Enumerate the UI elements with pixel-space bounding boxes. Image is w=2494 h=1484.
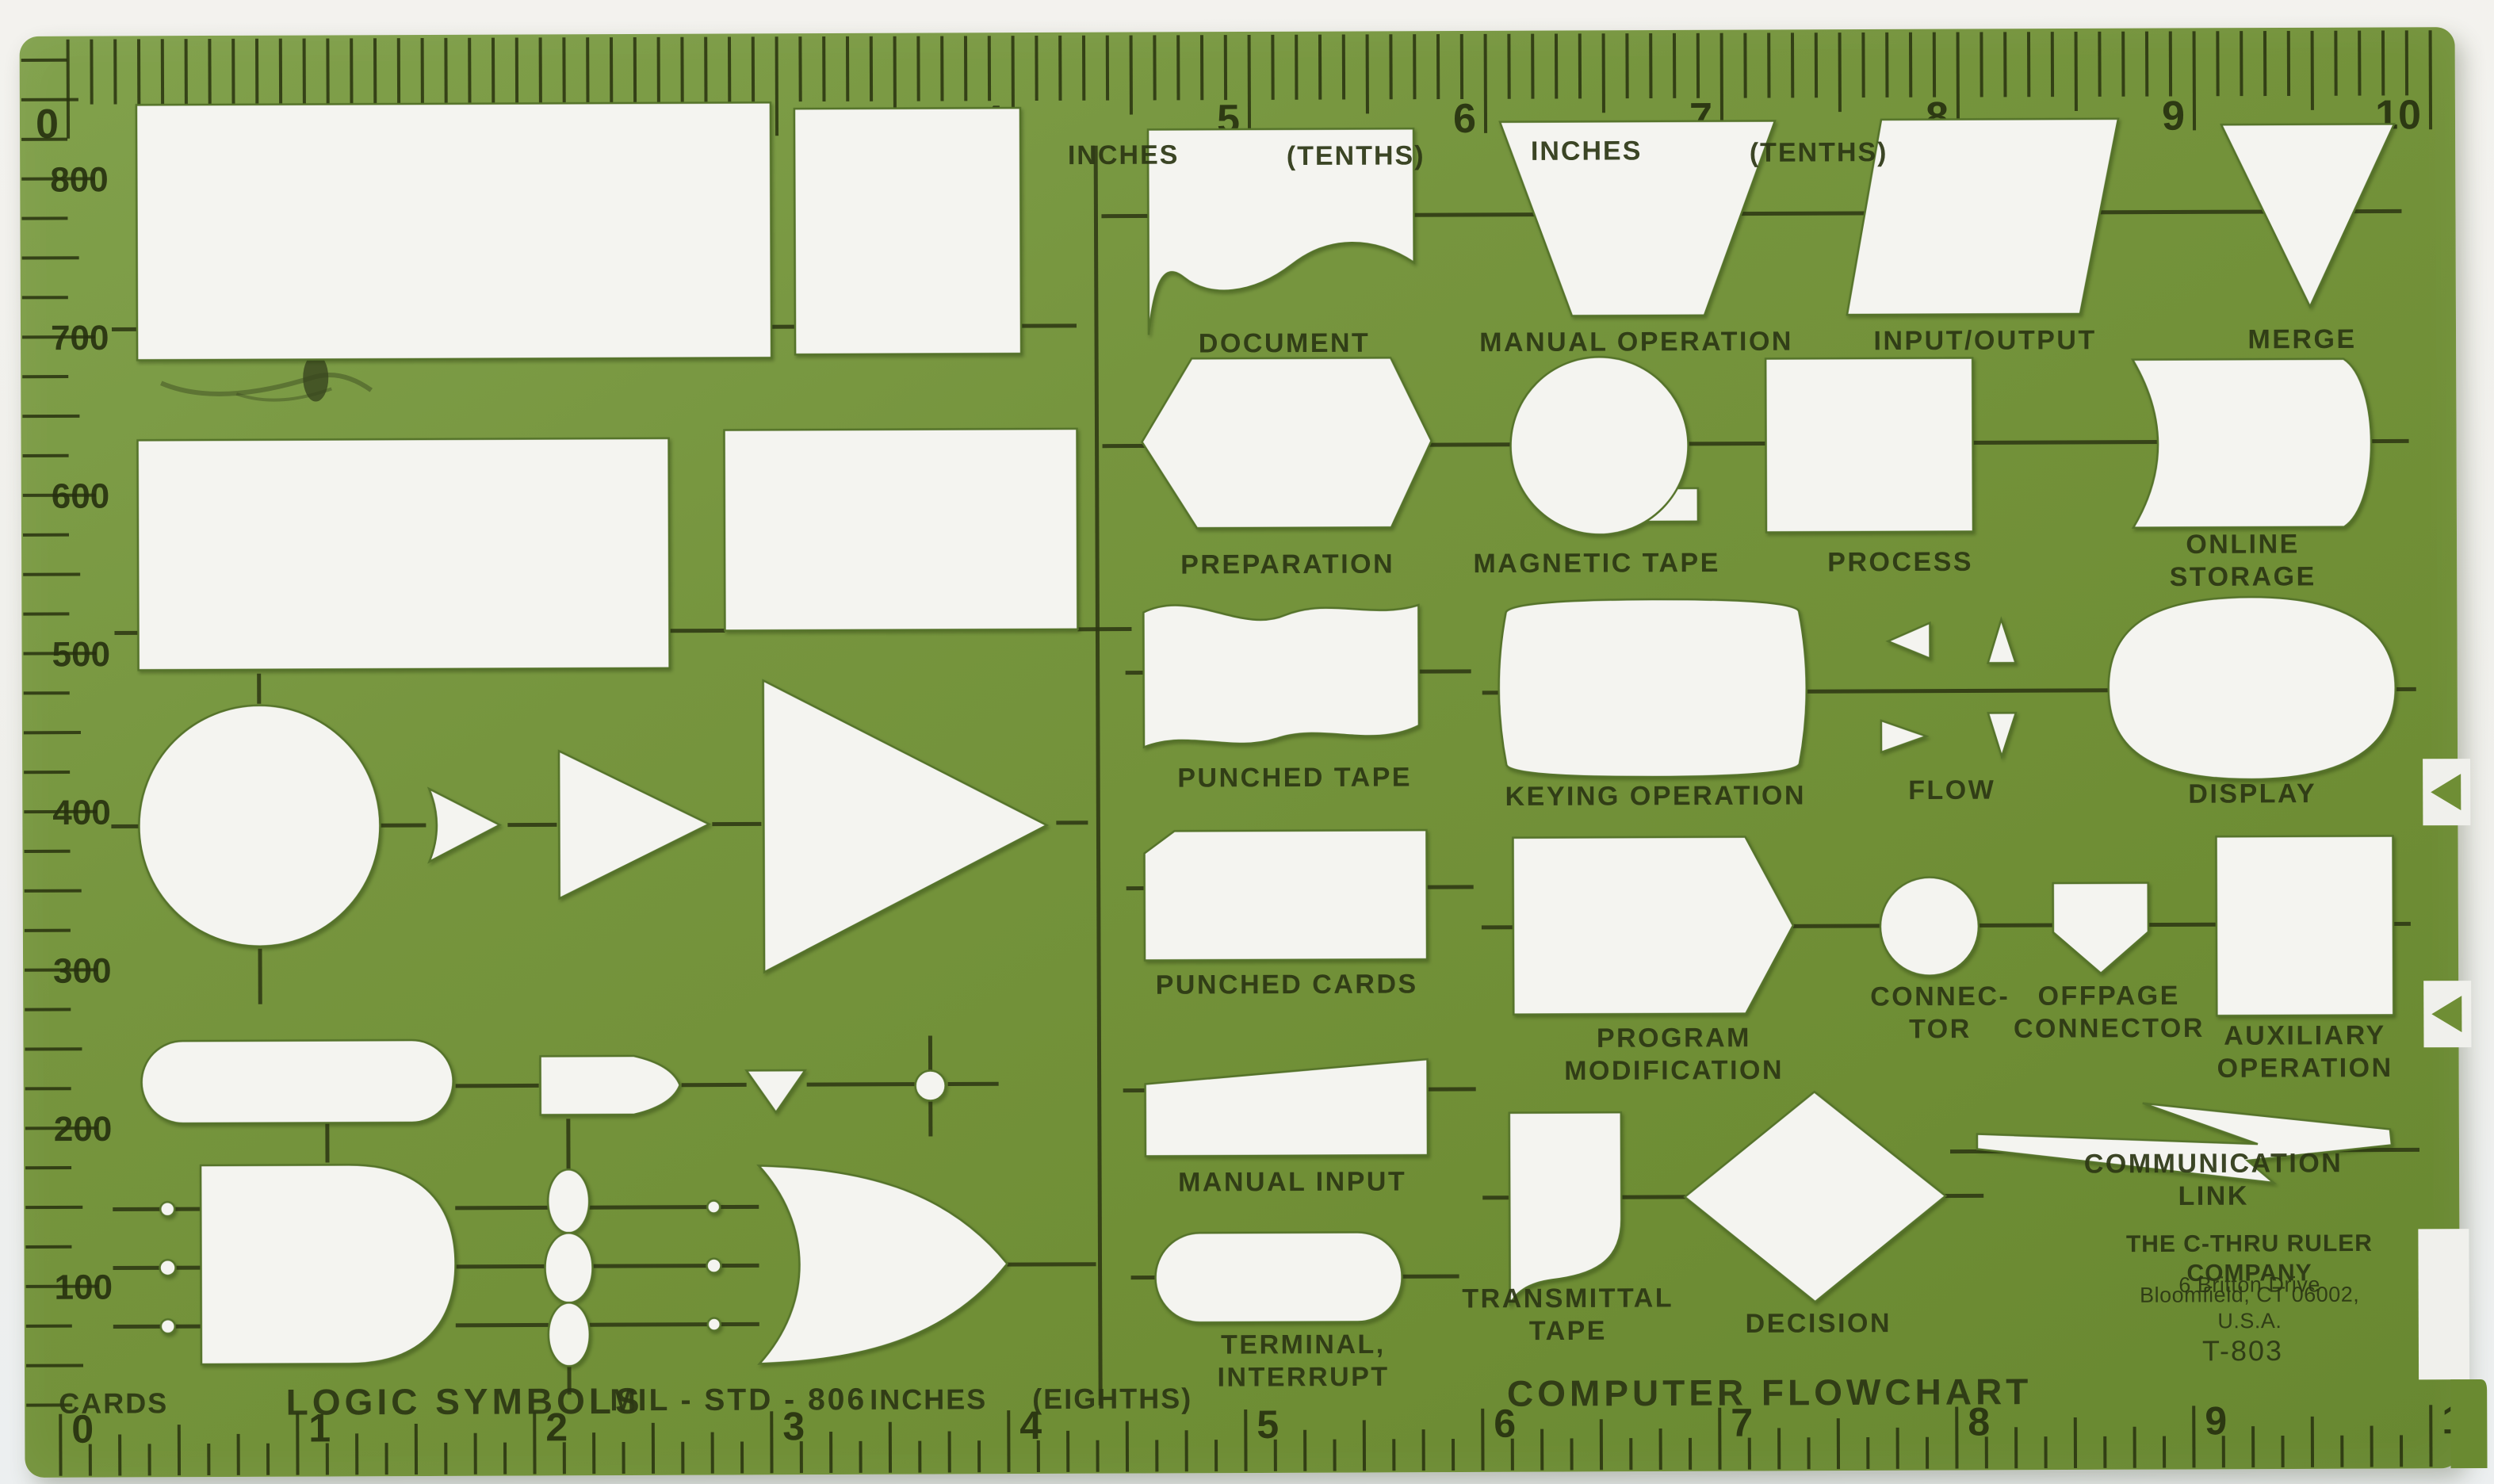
process-cutout <box>1765 358 1973 532</box>
triangle-large-cutout <box>763 679 1047 972</box>
caption-eighths-bottom: (EIGHTHS) <box>1032 1381 1192 1417</box>
label-input-output: INPUT/OUTPUT <box>1873 324 2096 358</box>
caption-logic-symbols: LOGIC SYMBOLS <box>286 1379 644 1425</box>
top-ruler-unit-inches-1: INCHES <box>1068 140 1180 173</box>
label-connector: CONNEC- TOR <box>1870 981 2010 1047</box>
flow-arrow-left-cutout <box>1888 623 1930 659</box>
left-ruler-ticks <box>21 60 100 1406</box>
decision-cutout <box>1685 1092 1946 1302</box>
triangle-medium-cutout <box>559 751 710 899</box>
connector-cutout <box>1880 877 1979 975</box>
ruler-number: 5 <box>1257 1402 1279 1447</box>
label-transmittal-tape: TRANSMITTAL TAPE <box>1462 1282 1674 1348</box>
label-display: DISPLAY <box>2188 778 2316 811</box>
flow-arrow-down-cutout <box>1988 713 2016 756</box>
label-process: PROCESS <box>1827 546 1973 579</box>
small-dot-cutout <box>916 1070 946 1100</box>
ruler-number: 700 <box>51 319 109 358</box>
label-punched-cards: PUNCHED CARDS <box>1156 968 1418 1002</box>
bullet-cutout <box>541 1056 680 1115</box>
ruler-number: 500 <box>52 635 110 674</box>
pen-smudge-artifact <box>161 354 371 402</box>
flow-arrow-up-cutout <box>1987 619 2015 663</box>
input-dot-cutout <box>708 1318 721 1331</box>
ruler-number: 0 <box>36 101 59 147</box>
label-decision: DECISION <box>1746 1307 1892 1341</box>
input-dot-cutout <box>706 1259 721 1273</box>
label-manual-operation: MANUAL OPERATION <box>1479 326 1793 360</box>
input-dot-cutout <box>160 1202 174 1216</box>
label-keying-operation: KEYING OPERATION <box>1505 780 1806 814</box>
medium-rectangle-cutout <box>724 429 1077 631</box>
online-storage-cutout <box>2133 359 2371 528</box>
top-ruler-unit-tenths-2: (TENTHS) <box>1750 136 1888 170</box>
label-preparation: PREPARATION <box>1180 549 1394 583</box>
ruler-number: 100 <box>55 1268 113 1306</box>
input-dot-cutout <box>707 1201 720 1214</box>
ruler-number: 400 <box>52 794 111 832</box>
scan-tilt-wrapper: 0123456789100123456789108007006005004003… <box>0 0 2494 1484</box>
label-offpage-connector: OFFPAGE CONNECTOR <box>2014 980 2205 1046</box>
magnetic-tape-cutout <box>1510 357 1689 535</box>
label-merge: MERGE <box>2247 323 2356 357</box>
input-dot-cutout <box>161 1319 175 1333</box>
small-triangle-down-cutout <box>747 1070 805 1112</box>
program-modification-cutout <box>1513 836 1793 1014</box>
ruler-number: 200 <box>54 1110 113 1149</box>
manual-input-cutout <box>1146 1059 1428 1156</box>
model-number: T-803 <box>2202 1333 2283 1368</box>
ruler-number: 9 <box>2205 1398 2227 1443</box>
small-rectangle-cutout <box>794 108 1021 354</box>
large-rectangle-cutout-2 <box>138 438 670 671</box>
scanned-stencil-image: 0123456789100123456789108007006005004003… <box>0 0 2494 1484</box>
label-flow: FLOW <box>1908 775 1995 808</box>
label-manual-input: MANUAL INPUT <box>1178 1165 1406 1199</box>
transmittal-tape-cutout <box>1509 1112 1622 1306</box>
company-address-line2: Bloomfield, CT 06002, U.S.A. <box>2126 1282 2373 1335</box>
input-dot-cutout <box>159 1260 175 1276</box>
arrowhead-small-cutout <box>429 789 499 862</box>
display-cutout <box>2108 596 2396 779</box>
caption-computer-flowchart: COMPUTER FLOWCHART <box>1507 1369 2033 1416</box>
rounded-pill-cutout <box>141 1040 453 1124</box>
ruler-number: 6 <box>1453 96 1476 142</box>
input-ellipse-cutout-1 <box>548 1169 589 1233</box>
or-gate-cutout <box>759 1165 1008 1364</box>
punched-tape-cutout <box>1143 604 1419 747</box>
terminal-interrupt-cutout <box>1155 1232 1402 1322</box>
keying-operation-cutout <box>1498 599 1807 777</box>
punched-cards-cutout <box>1144 830 1427 960</box>
label-auxiliary-operation: AUXILIARY OPERATION <box>2217 1019 2393 1086</box>
offpage-connector-cutout <box>2053 883 2148 973</box>
ruler-number: 600 <box>52 477 110 516</box>
large-rectangle-cutout-1 <box>136 102 771 360</box>
flow-arrow-right-cutout <box>1881 721 1926 752</box>
caption-mil-std-806: MIL - STD - 806 <box>610 1381 866 1420</box>
label-program-modification: PROGRAM MODIFICATION <box>1564 1022 1784 1088</box>
section-divider-line <box>1096 146 1100 1406</box>
caption-cards: CARDS <box>59 1386 168 1421</box>
circle-cutout <box>139 705 381 947</box>
label-punched-tape: PUNCHED TAPE <box>1177 761 1412 795</box>
ruler-number: 9 <box>2162 93 2185 139</box>
label-online-storage: ONLINE STORAGE <box>2117 528 2368 595</box>
input-ellipse-cutout-2 <box>545 1233 592 1302</box>
auxiliary-operation-cutout <box>2216 836 2393 1015</box>
input-ellipse-cutout-3 <box>549 1302 590 1366</box>
label-terminal-interrupt: TERMINAL, INTERRUPT <box>1217 1329 1389 1395</box>
caption-inches-bottom: INCHES <box>870 1382 987 1417</box>
top-ruler-unit-tenths-1: (TENTHS) <box>1287 140 1425 173</box>
ruler-number: 300 <box>53 951 112 990</box>
preparation-cutout <box>1142 358 1432 528</box>
top-ruler-unit-inches-2: INCHES <box>1531 135 1643 168</box>
stencil-artwork: 0123456789100123456789108007006005004003… <box>0 0 2494 1484</box>
merge-cutout <box>2221 124 2395 307</box>
ruler-number: 800 <box>50 160 109 199</box>
and-gate-cutout <box>201 1165 456 1364</box>
right-edge-notches <box>2416 759 2487 1468</box>
label-magnetic-tape: MAGNETIC TAPE <box>1473 547 1720 581</box>
label-document: DOCUMENT <box>1199 327 1371 361</box>
label-communication-link: COMMUNICATION LINK <box>2072 1147 2354 1214</box>
